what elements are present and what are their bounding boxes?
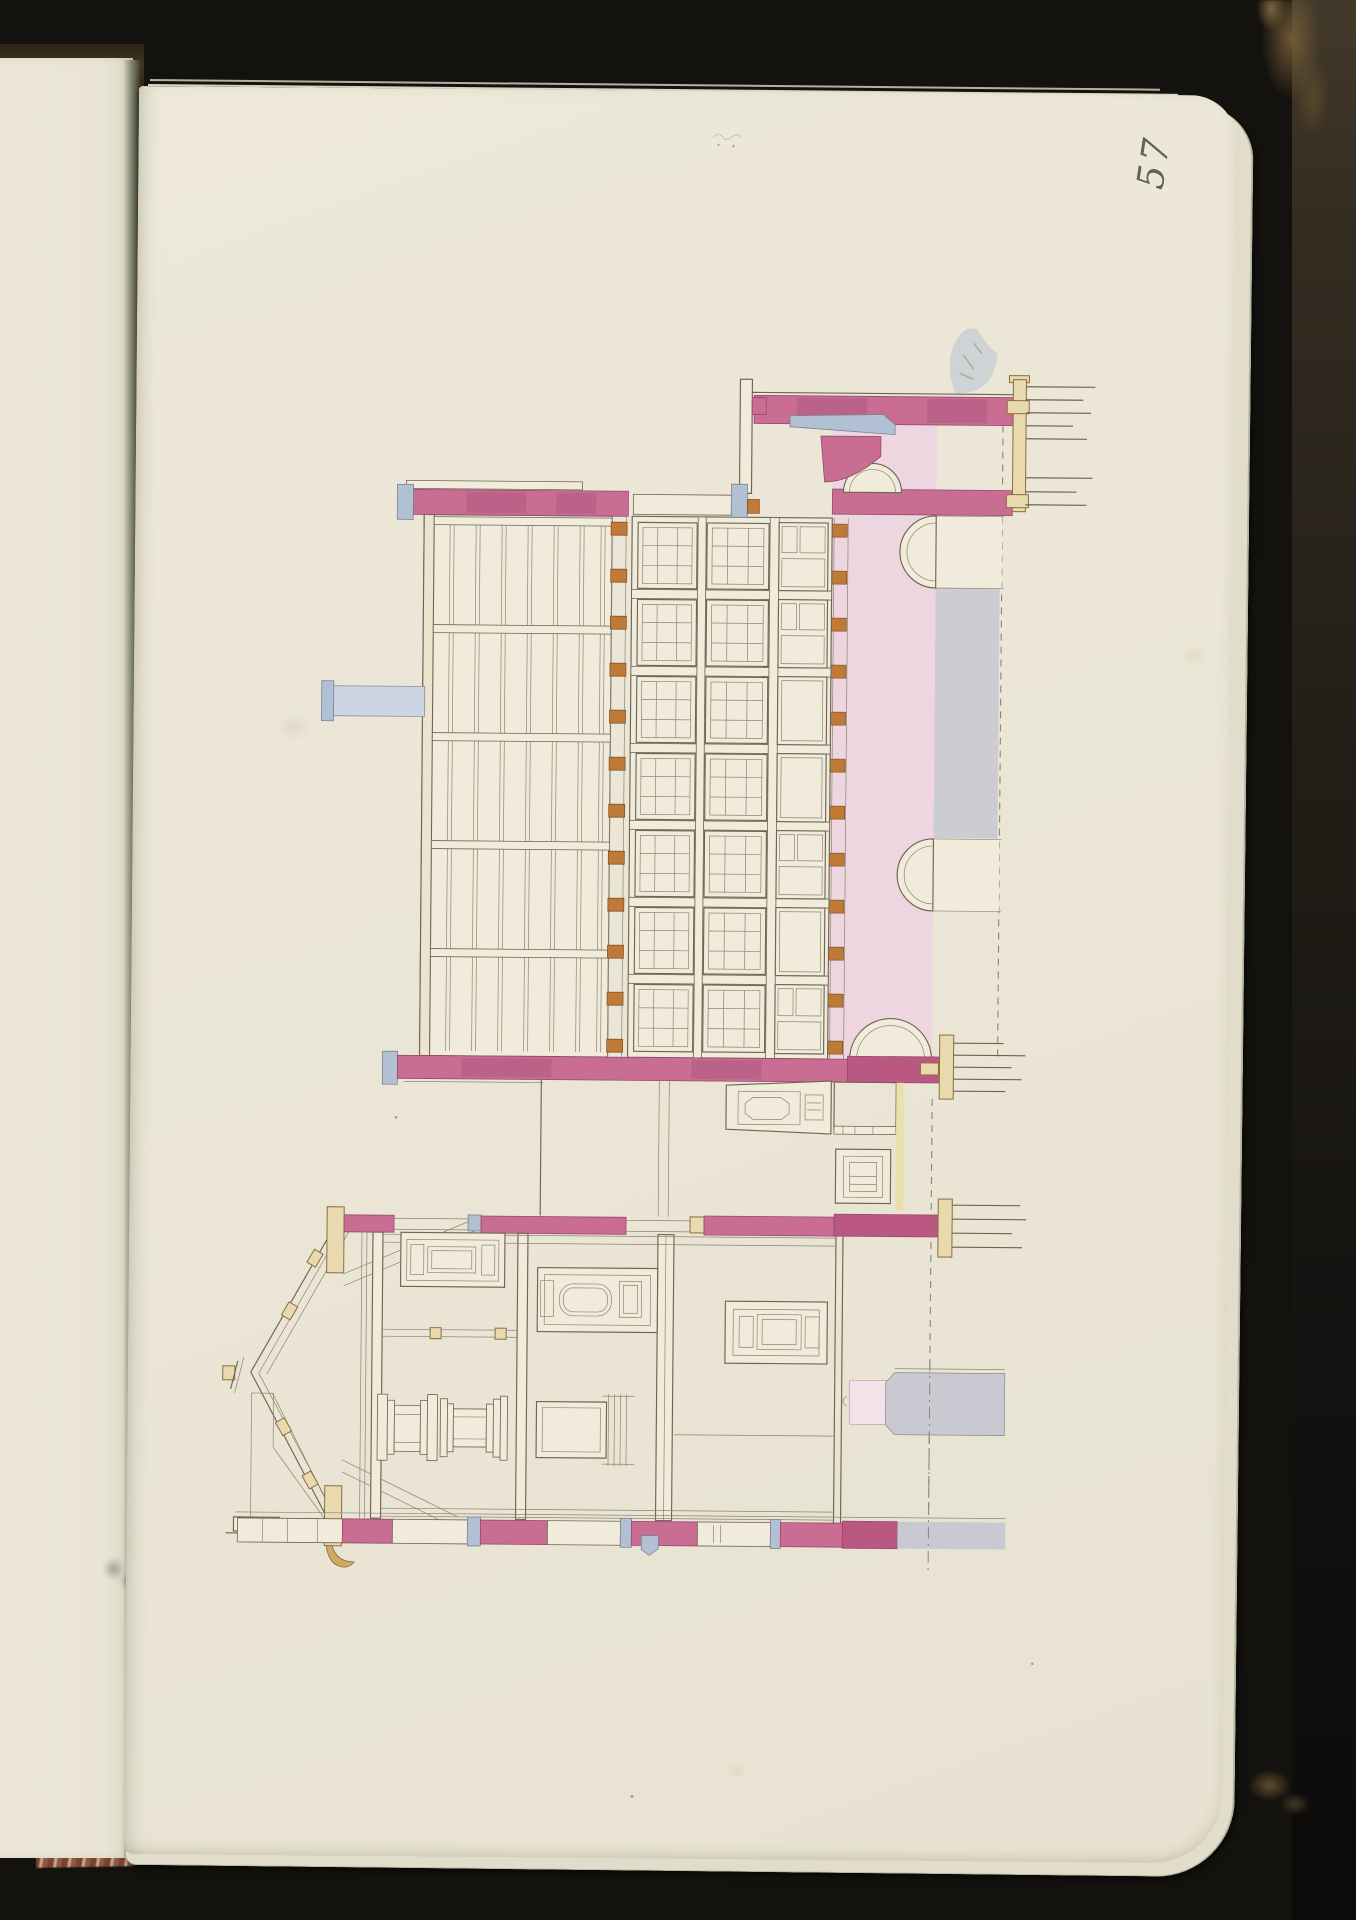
louvre-bay <box>775 523 829 1054</box>
page: 57 <box>124 86 1237 1864</box>
book-cover-right-edge <box>1292 0 1356 1920</box>
middle-details <box>725 1080 904 1211</box>
yellow-wash-strip <box>895 1083 904 1211</box>
glazed-wall-panel <box>628 483 833 1059</box>
columns <box>377 1392 635 1466</box>
oval-panel <box>537 1268 658 1333</box>
scroll-foot <box>326 1546 354 1568</box>
lower-bottom-band <box>235 1512 1005 1559</box>
scanned-sketchbook-page: 57 <box>0 0 1356 1920</box>
frieze-panel <box>401 1232 505 1287</box>
cover-fray-bottom-right <box>1236 1752 1320 1826</box>
blue-drop-mark <box>641 1535 658 1555</box>
timber-framing-panel <box>319 514 613 1058</box>
hatched-infill <box>251 1393 326 1519</box>
watercolor-smudge <box>949 328 998 394</box>
facing-page <box>0 58 133 1858</box>
architectural-section-drawing <box>124 86 1237 1864</box>
projecting-beam <box>328 686 425 717</box>
architrave-panel <box>725 1301 828 1364</box>
lower-section <box>221 1193 1026 1576</box>
hatched-block <box>834 1082 896 1129</box>
